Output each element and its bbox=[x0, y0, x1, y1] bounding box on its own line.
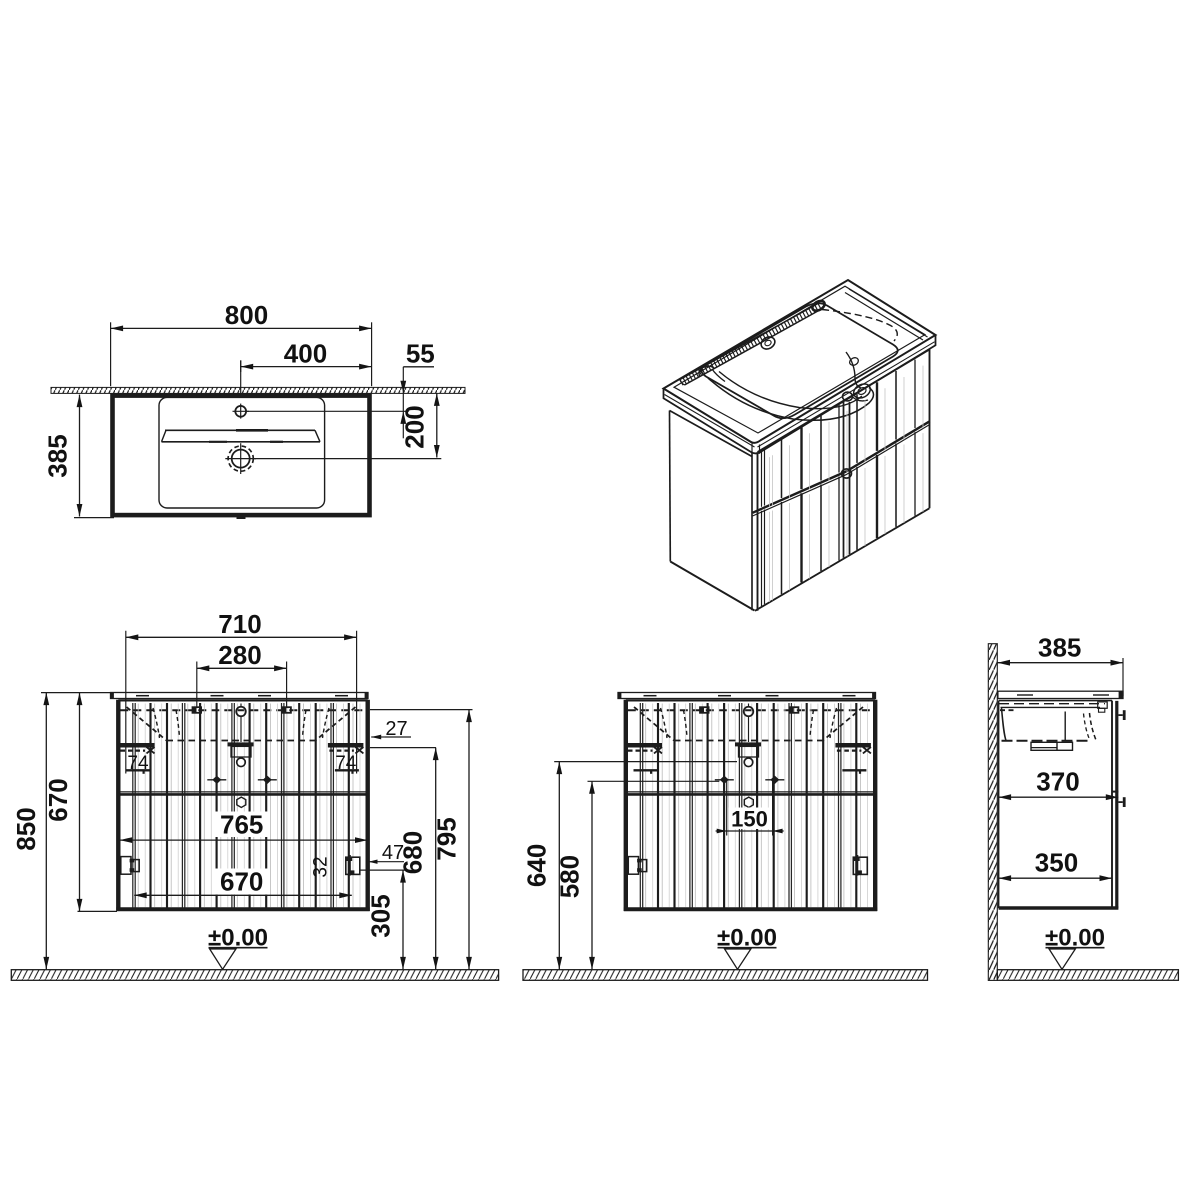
svg-text:47: 47 bbox=[382, 842, 404, 864]
svg-text:710: 710 bbox=[218, 609, 261, 639]
svg-text:670: 670 bbox=[220, 867, 263, 897]
svg-text:640: 640 bbox=[522, 844, 552, 887]
svg-text:385: 385 bbox=[1038, 633, 1081, 663]
svg-text:580: 580 bbox=[555, 855, 585, 898]
svg-text:55: 55 bbox=[406, 339, 435, 369]
svg-text:400: 400 bbox=[284, 338, 327, 368]
svg-text:200: 200 bbox=[400, 405, 430, 448]
svg-text:370: 370 bbox=[1036, 767, 1079, 797]
svg-text:800: 800 bbox=[225, 300, 268, 330]
svg-text:385: 385 bbox=[43, 434, 73, 477]
svg-text:670: 670 bbox=[43, 778, 73, 821]
svg-text:765: 765 bbox=[220, 810, 263, 840]
svg-text:74: 74 bbox=[335, 753, 357, 774]
svg-text:32: 32 bbox=[311, 856, 332, 877]
svg-text:850: 850 bbox=[11, 807, 41, 850]
svg-text:350: 350 bbox=[1035, 848, 1078, 878]
svg-text:74: 74 bbox=[127, 753, 149, 774]
svg-text:305: 305 bbox=[366, 894, 396, 937]
svg-text:150: 150 bbox=[731, 807, 768, 832]
svg-text:280: 280 bbox=[218, 640, 261, 670]
